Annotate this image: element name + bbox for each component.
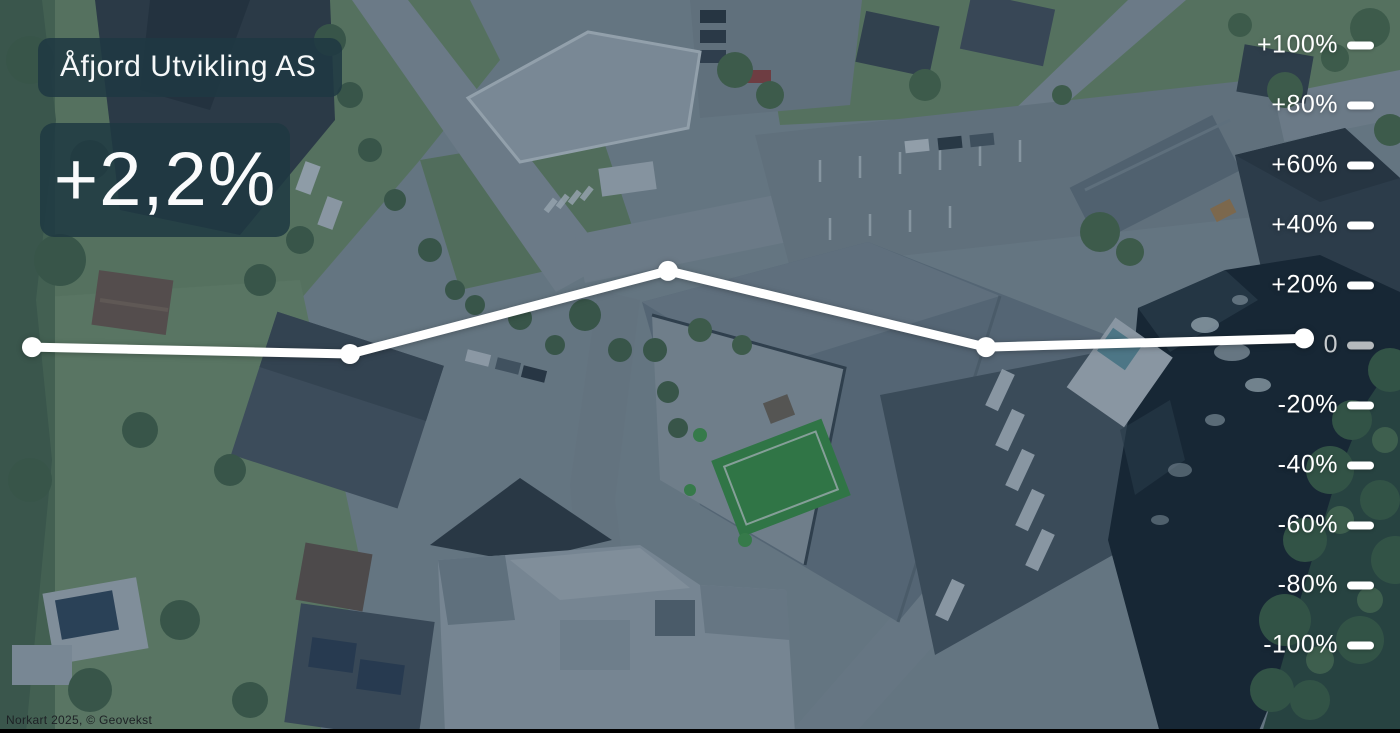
change-value: +2,2% <box>54 142 277 218</box>
data-point-3 <box>976 337 996 357</box>
axis-tick-mark <box>1347 581 1374 589</box>
axis-label: -20% <box>1278 393 1338 418</box>
axis-tick-mark <box>1347 281 1374 289</box>
axis-row--60: -60% <box>1278 513 1374 538</box>
axis-row--40: -40% <box>1278 453 1374 478</box>
axis-label: -80% <box>1278 573 1338 598</box>
axis-row--100: -100% <box>1263 633 1374 658</box>
axis-label: 0 <box>1324 333 1338 358</box>
axis-label: +60% <box>1271 153 1338 178</box>
axis-tick-mark <box>1347 221 1374 229</box>
axis-row--20: -20% <box>1278 393 1374 418</box>
data-point-4 <box>1294 328 1314 348</box>
axis-row-0: 0 <box>1324 333 1374 358</box>
company-name: Åfjord Utvikling AS <box>60 50 316 83</box>
axis-tick-mark <box>1347 521 1374 529</box>
axis-tick-mark <box>1347 401 1374 409</box>
company-card: Åfjord Utvikling AS <box>38 38 342 97</box>
axis-row-60: +60% <box>1271 153 1374 178</box>
axis-tick-mark <box>1347 641 1374 649</box>
change-value-card: +2,2% <box>40 123 290 237</box>
axis-label: +100% <box>1257 33 1338 58</box>
axis-label: +20% <box>1271 273 1338 298</box>
axis-row-40: +40% <box>1271 213 1374 238</box>
axis-label: -100% <box>1263 633 1338 658</box>
axis-label: -40% <box>1278 453 1338 478</box>
bottom-bar <box>0 729 1400 733</box>
axis-tick-mark <box>1347 461 1374 469</box>
data-point-0 <box>22 337 42 357</box>
map-attribution: Norkart 2025, © Geovekst <box>6 713 152 727</box>
axis-label: +40% <box>1271 213 1338 238</box>
axis-tick-mark <box>1347 161 1374 169</box>
axis-row-80: +80% <box>1271 93 1374 118</box>
percent-axis: +100%+80%+60%+40%+20%0-20%-40%-60%-80%-1… <box>0 0 1400 733</box>
data-point-1 <box>340 344 360 364</box>
axis-tick-mark <box>1347 101 1374 109</box>
axis-tick-mark <box>1347 341 1374 349</box>
axis-row-100: +100% <box>1257 33 1374 58</box>
axis-label: -60% <box>1278 513 1338 538</box>
chart-line <box>32 271 1304 354</box>
aerial-map-background <box>0 0 1400 733</box>
visualization-stage: +100%+80%+60%+40%+20%0-20%-40%-60%-80%-1… <box>0 0 1400 733</box>
data-point-2 <box>658 261 678 281</box>
axis-tick-mark <box>1347 41 1374 49</box>
axis-label: +80% <box>1271 93 1338 118</box>
axis-row-20: +20% <box>1271 273 1374 298</box>
axis-row--80: -80% <box>1278 573 1374 598</box>
line-chart <box>0 0 1400 733</box>
